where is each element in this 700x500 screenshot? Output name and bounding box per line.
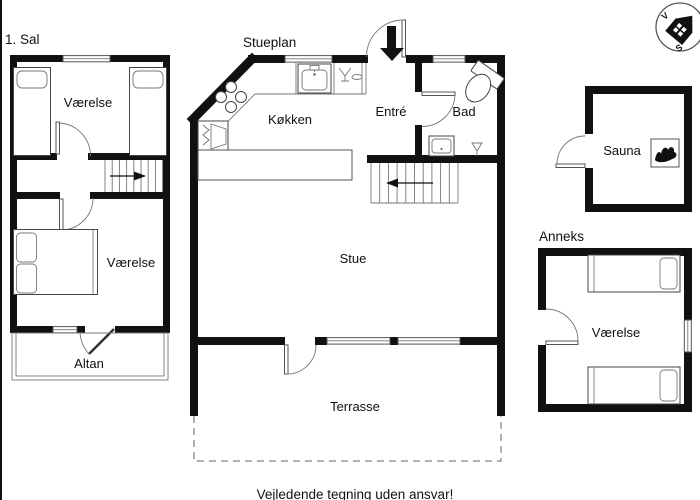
bed-icon (588, 255, 680, 292)
wall (585, 86, 593, 134)
wall (415, 55, 422, 92)
wall (390, 337, 398, 345)
kitchen-sink-icon (298, 64, 331, 93)
disclaimer-text: Vejledende tegning uden ansvar! (257, 487, 454, 500)
double-bed-icon (14, 230, 98, 295)
page-left-border (0, 0, 2, 500)
wall (248, 55, 285, 63)
wall (585, 168, 593, 212)
room-label-annex-bedroom: Værelse (592, 325, 640, 340)
wall (538, 404, 692, 412)
floorplan-drawing: 1. Sal (0, 0, 700, 500)
wall (415, 125, 422, 155)
wall (585, 86, 692, 94)
room-label-sauna: Sauna (603, 143, 641, 158)
wall (315, 337, 327, 345)
door-leaf (422, 92, 455, 96)
room-label-bedroom-bottom: Værelse (107, 255, 155, 270)
room-label-bathroom: Bad (452, 104, 475, 119)
annex-title: Anneks (539, 229, 584, 244)
room-label-living-room: Stue (340, 251, 367, 266)
wall (332, 55, 368, 63)
bed-icon (130, 68, 167, 156)
wall (10, 55, 63, 62)
wall (684, 248, 692, 320)
window (327, 338, 390, 345)
wall (684, 86, 692, 212)
ground-floor-title: Stueplan (243, 35, 296, 50)
bed-icon (588, 367, 680, 404)
wall (190, 337, 285, 345)
wall (497, 345, 505, 416)
door-leaf (546, 341, 578, 345)
room-label-entry: Entré (375, 104, 406, 119)
room-label-kitchen: Køkken (268, 112, 312, 127)
door-leaf (56, 122, 60, 154)
bath-sink-icon (429, 136, 454, 156)
kitchen-island (198, 150, 352, 180)
wall (684, 352, 692, 412)
wall (110, 55, 170, 62)
door-leaf (285, 345, 289, 374)
wall (77, 326, 85, 333)
window (285, 56, 332, 63)
room-label-bedroom-top: Værelse (64, 95, 112, 110)
wall (10, 326, 53, 333)
fridge-icon (198, 121, 228, 152)
door-leaf (556, 164, 585, 168)
wall (90, 192, 170, 199)
wall (460, 337, 505, 345)
wall (10, 192, 60, 199)
room-label-balcony: Altan (74, 356, 104, 371)
wall (190, 345, 198, 416)
wall (538, 248, 546, 310)
floorplan-page: 1. Sal (0, 0, 700, 500)
room-label-terrace: Terrasse (330, 399, 380, 414)
window (684, 320, 691, 352)
window (433, 56, 465, 63)
sauna-heater-icon (651, 139, 679, 167)
door-leaf (402, 20, 406, 57)
window (398, 338, 460, 345)
door-leaf (60, 199, 64, 230)
bed-icon (14, 68, 51, 156)
first-floor-title: 1. Sal (5, 32, 40, 47)
wall (538, 345, 546, 412)
window (63, 56, 110, 62)
wall (115, 326, 170, 333)
wall (585, 204, 692, 212)
entrance-arrow-icon (387, 26, 396, 49)
window (53, 327, 77, 333)
